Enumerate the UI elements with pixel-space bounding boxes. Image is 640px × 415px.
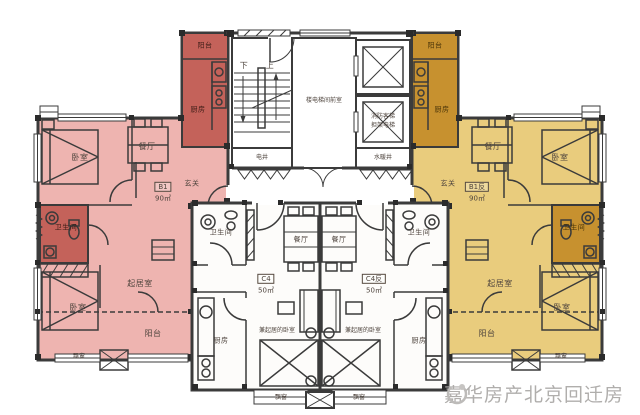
watermark: 嘉华房产北京回迁房	[444, 380, 624, 407]
label-b1rev-kitchen: 厨房	[435, 107, 450, 114]
badge-c4rev-code: C4反	[362, 274, 386, 284]
label-b1rev-living: 起居室	[487, 280, 513, 288]
label-b1rev-bedroom-1: 卧室	[552, 154, 569, 162]
badge-c4-code: C4	[257, 274, 274, 284]
label-c4rev-living-bedroom: 兼起居的卧室	[345, 328, 381, 334]
label-b1rev-balcony: 阳台	[479, 330, 496, 338]
label-stairs-up: 上	[266, 62, 275, 70]
label-b1-dining: 餐厅	[139, 143, 156, 151]
badge-b1rev-code: B1反	[465, 182, 489, 192]
label-c4-kitchen: 厨房	[214, 338, 229, 345]
label-c4-living-bedroom: 兼起居的卧室	[259, 328, 295, 334]
label-b1-balcony-top: 阳台	[198, 43, 213, 50]
floor-plan-page: 阳台 厨房 卧室 餐厅 玄关 B1 90㎡ 卫生间 起居室 卧室 阳台 飘窗 阳…	[0, 0, 640, 415]
label-c4-bay-window: 飘窗	[275, 395, 287, 401]
label-b1rev-dining: 餐厅	[485, 143, 502, 151]
label-b1rev-area: 90㎡	[469, 196, 485, 203]
watermark-text: 嘉华房产北京回迁房	[444, 380, 624, 407]
label-b1-living: 起居室	[127, 280, 153, 288]
label-elevator-lobby: 楼电梯间前室	[306, 98, 342, 104]
label-b1-bathroom: 卫生间	[55, 225, 78, 232]
label-b1-kitchen: 厨房	[191, 107, 206, 114]
watermark-logo-icon	[444, 380, 470, 406]
label-c4-bathroom: 卫生间	[210, 230, 233, 237]
label-b1rev-bay-window: 飘窗	[555, 354, 567, 360]
label-electrical-shaft: 电井	[256, 155, 268, 161]
label-c4rev-dining: 餐厅	[332, 237, 347, 244]
label-b1-bedroom-2: 卧室	[70, 304, 87, 312]
label-b1rev-entry: 玄关	[441, 181, 456, 188]
label-fire-elevator-2: 担架电梯	[371, 123, 395, 129]
label-c4-dining: 餐厅	[294, 237, 309, 244]
label-c4rev-area: 50㎡	[366, 288, 382, 295]
label-c4rev-kitchen: 厨房	[412, 338, 427, 345]
floor-plan-drawing	[0, 0, 640, 415]
label-c4rev-bay-window: 飘窗	[353, 395, 365, 401]
label-plumbing-shaft: 水暖井	[374, 155, 392, 161]
label-b1rev-balcony-top: 阳台	[428, 43, 443, 50]
label-b1-balcony: 阳台	[145, 330, 162, 338]
label-c4-area: 50㎡	[258, 288, 274, 295]
badge-b1-code: B1	[154, 182, 171, 192]
label-fire-elevator-1: 消防客梯	[371, 114, 395, 120]
label-b1-bedroom-1: 卧室	[72, 154, 89, 162]
label-b1rev-bathroom: 卫生间	[563, 225, 586, 232]
label-b1-area: 90㎡	[155, 196, 171, 203]
label-c4rev-bathroom: 卫生间	[408, 230, 431, 237]
label-stairs-down: 下	[240, 62, 249, 70]
label-b1-bay-window: 飘窗	[73, 354, 85, 360]
label-b1rev-bedroom-2: 卧室	[554, 304, 571, 312]
label-b1-entry: 玄关	[185, 181, 200, 188]
